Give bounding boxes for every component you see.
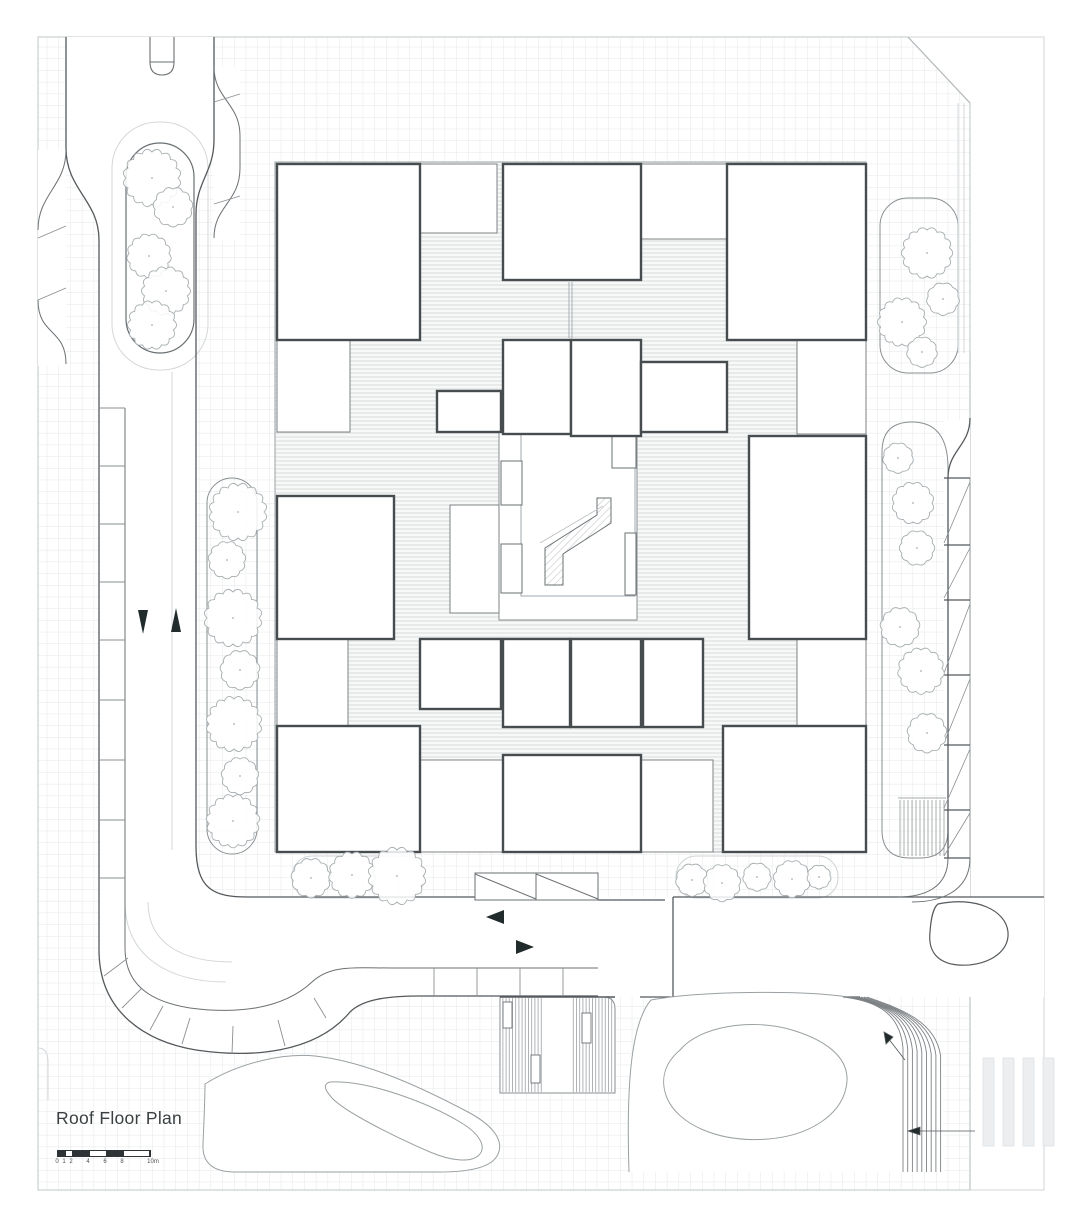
tree-center-dot [239,669,241,671]
scale-segment [123,1151,150,1156]
scale-segment [89,1151,107,1156]
pergola-slats-right [572,998,614,1092]
roof-panel [797,340,866,434]
scale-label: 4 [86,1159,89,1165]
scale-segment [65,1151,74,1156]
scale-bar: 0 1 2 4 6 8 10m [57,1150,187,1168]
courtyard-skylight [625,533,636,595]
tree-center-dot [172,206,174,208]
roof-floor-plan-drawing [0,0,1080,1221]
zebra-bar [1043,1058,1054,1146]
tree-center-dot [920,670,922,672]
tree-center-dot [148,255,150,257]
tree-center-dot [232,820,234,822]
tree-center-dot [310,877,312,879]
roof-block [420,639,501,709]
tree-center-dot [233,723,235,725]
scale-segment [73,1151,89,1156]
roof-panel [450,505,499,613]
scale-bar-labels: 0 1 2 4 6 8 10m [57,1159,187,1168]
plan-title: Roof Floor Plan [56,1108,182,1128]
roof-panel [641,760,713,852]
pergola-skylight [503,1002,512,1028]
roof-panel [641,164,727,239]
courtyard-skylight [501,544,522,593]
zebra-bar [1023,1058,1034,1146]
scale-bar-segments [57,1150,151,1157]
tree-center-dot [151,324,153,326]
tree-center-dot [916,547,918,549]
scale-label: 10m [147,1159,159,1165]
tree-center-dot [926,252,928,254]
tree-center-dot [926,732,928,734]
roof-block [571,340,641,436]
pergola-skylight [582,1013,591,1043]
scale-label: 1 [62,1159,65,1165]
building-roof [275,162,866,852]
tree-center-dot [165,290,167,292]
roof-block [641,362,727,432]
west-road-pocket [38,150,66,366]
roof-block [277,164,420,340]
scale-segment [107,1151,123,1156]
zebra-crossing [983,1058,1054,1146]
scale-label: 6 [103,1159,106,1165]
roof-block [503,755,641,852]
roof-block [503,164,641,280]
tree-center-dot [691,879,693,881]
roof-panel [420,164,497,233]
roof-block [723,726,866,852]
zebra-bar [1003,1058,1014,1146]
roof-panel [277,340,350,432]
pergola-skylight [531,1055,540,1083]
courtyard-skylight [501,461,522,505]
roof-block [643,639,703,727]
tree-center-dot [237,511,239,513]
roof-panel [420,760,503,852]
tree-center-dot [912,502,914,504]
tree-center-dot [899,626,901,628]
tree-center-dot [151,177,153,179]
roof-block [571,639,641,727]
tree-center-dot [756,876,758,878]
zebra-bar [983,1058,994,1146]
roof-block [437,391,501,432]
scale-label: 0 [55,1159,58,1165]
tree-center-dot [239,775,241,777]
roof-block [727,164,866,340]
tree-center-dot [818,876,820,878]
roof-panel [797,639,866,727]
drawing-sheet: Roof Floor Plan 0 1 2 4 6 8 10m [0,0,1080,1221]
tree-center-dot [791,878,793,880]
roof-block [277,726,420,852]
roof-block [503,340,571,434]
roof-block [749,436,866,639]
tree-center-dot [232,617,234,619]
tree-center-dot [351,874,353,876]
title-block: Roof Floor Plan [56,1108,182,1129]
scale-label: 2 [69,1159,72,1165]
roof-block [503,639,570,727]
tree-center-dot [396,875,398,877]
roof-block [277,496,394,639]
tree-center-dot [942,298,944,300]
tree-center-dot [226,559,228,561]
scale-label: 8 [120,1159,123,1165]
roof-panel [277,639,348,727]
pergola-canopy [500,997,615,1093]
tree-center-dot [721,882,723,884]
tree-center-dot [921,351,923,353]
tree-center-dot [901,321,903,323]
tree-center-dot [897,457,899,459]
east-road-pocket [214,67,240,239]
